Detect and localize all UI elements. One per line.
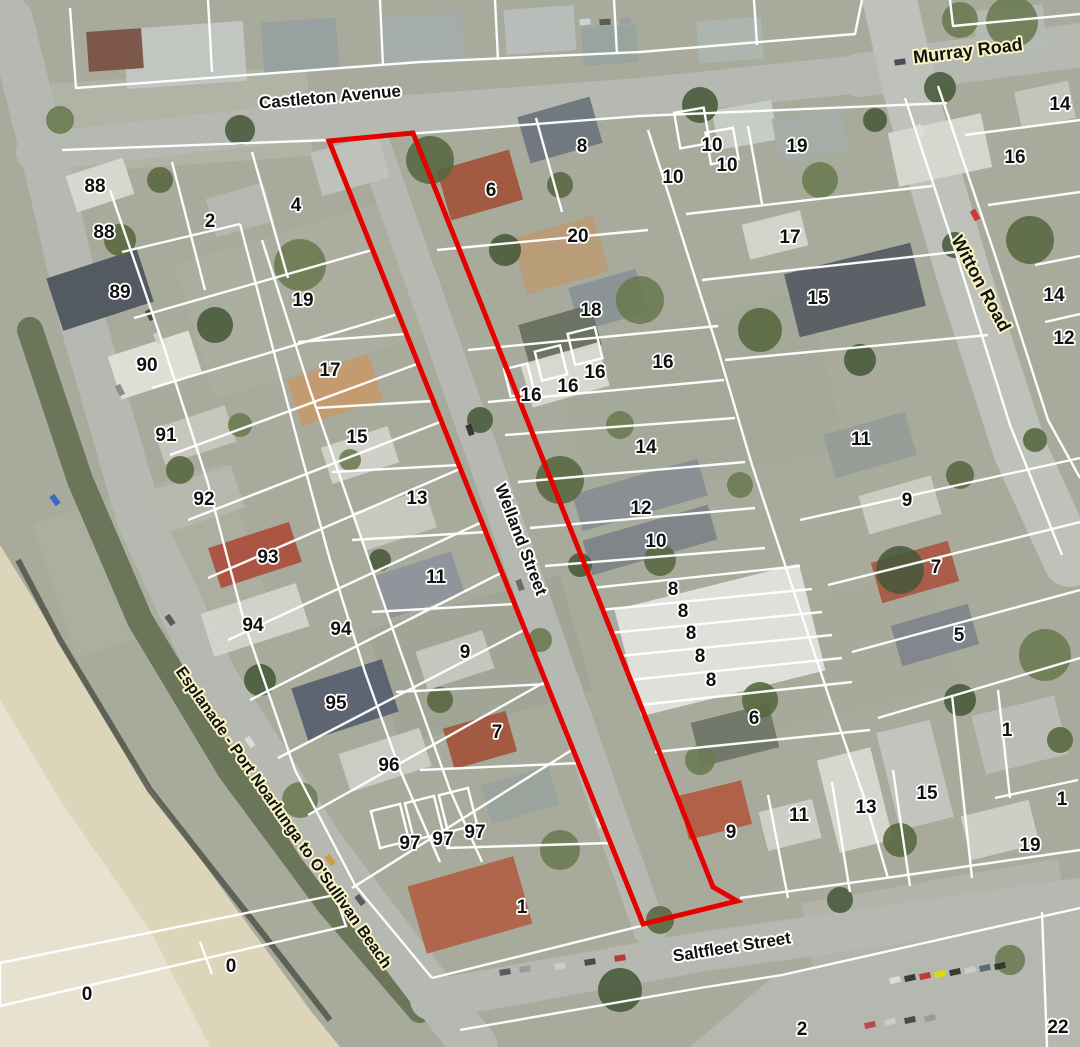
- parcel-number-label: 18: [580, 300, 601, 321]
- tree-canopy: [489, 234, 521, 266]
- parcel-number-label: 8: [686, 623, 697, 644]
- tree-canopy: [883, 823, 917, 857]
- parcel-number-label: 15: [807, 288, 829, 309]
- tree-canopy: [924, 72, 956, 104]
- parked-car: [579, 19, 590, 26]
- tree-canopy: [944, 684, 976, 716]
- parcel-number-label: 14: [1043, 285, 1065, 306]
- parcel-number-label: 11: [426, 567, 447, 588]
- tree-canopy: [540, 830, 580, 870]
- aerial-map[interactable]: Castleton AvenueMurray RoadWitton RoadWe…: [0, 0, 1080, 1047]
- tree-canopy: [1006, 216, 1054, 264]
- parcel-number-label: 92: [193, 489, 214, 510]
- parcel-number-label: 0: [82, 984, 93, 1005]
- parcel-number-label: 16: [1004, 147, 1025, 168]
- parcel-number-label: 10: [701, 135, 722, 156]
- parcel-number-label: 8: [668, 579, 679, 600]
- parcel-number-label: 19: [1019, 835, 1040, 856]
- parked-car: [619, 18, 630, 25]
- parcel-number-label: 20: [567, 226, 588, 247]
- parcel-number-label: 7: [931, 557, 942, 578]
- parcel-number-label: 8: [678, 601, 689, 622]
- parcel-number-label: 96: [378, 755, 399, 776]
- tree-canopy: [863, 108, 887, 132]
- parcel-number-label: 2: [797, 1019, 808, 1040]
- tree-canopy: [166, 456, 194, 484]
- parcel-number-label: 14: [635, 437, 657, 458]
- parcel-number-label: 6: [486, 180, 497, 201]
- tree-canopy: [742, 682, 778, 718]
- parcel-number-label: 97: [464, 822, 485, 843]
- parcel-number-label: 97: [399, 833, 420, 854]
- parcel-number-label: 90: [136, 355, 157, 376]
- parcel-number-label: 12: [1053, 328, 1074, 349]
- parcel-number-label: 16: [557, 376, 578, 397]
- parcel-number-label: 88: [84, 176, 105, 197]
- parcel-number-label: 5: [954, 625, 965, 646]
- parcel-number-label: 10: [645, 531, 666, 552]
- building-roof: [86, 28, 144, 72]
- parcel-number-label: 97: [432, 829, 453, 850]
- tree-canopy: [1023, 428, 1047, 452]
- parcel-number-label: 0: [226, 956, 237, 977]
- tree-canopy: [682, 87, 718, 123]
- parcel-number-label: 10: [662, 167, 683, 188]
- parcel-number-label: 22: [1047, 1017, 1068, 1038]
- tree-canopy: [942, 2, 978, 38]
- parcel-number-label: 10: [716, 155, 737, 176]
- parcel-number-label: 19: [292, 290, 313, 311]
- building-roof: [261, 17, 339, 72]
- parcel-number-label: 9: [726, 822, 737, 843]
- parcel-number-label: 9: [460, 642, 471, 663]
- parcel-number-label: 14: [1049, 94, 1071, 115]
- parcel-number-label: 8: [577, 136, 588, 157]
- parcel-number-label: 94: [242, 615, 264, 636]
- parcel-number-label: 7: [492, 722, 503, 743]
- aerial-map-viewport[interactable]: Castleton AvenueMurray RoadWitton RoadWe…: [0, 0, 1080, 1047]
- parcel-number-label: 4: [291, 195, 302, 216]
- parcel-number-label: 95: [325, 693, 347, 714]
- parcel-number-label: 13: [406, 488, 427, 509]
- tree-canopy: [197, 307, 233, 343]
- parcel-number-label: 11: [851, 429, 872, 450]
- tree-canopy: [1047, 727, 1073, 753]
- parcel-number-label: 9: [902, 490, 913, 511]
- parcel-number-label: 1: [1002, 720, 1013, 741]
- parcel-number-label: 91: [155, 425, 177, 446]
- parcel-number-label: 8: [695, 646, 706, 667]
- parcel-number-label: 16: [584, 362, 605, 383]
- parked-car: [599, 19, 610, 26]
- parcel-number-label: 11: [789, 805, 810, 826]
- parcel-number-label: 1: [1057, 789, 1068, 810]
- parcel-number-label: 8: [706, 670, 717, 691]
- tree-canopy: [616, 276, 664, 324]
- parcel-number-label: 13: [855, 797, 876, 818]
- parcel-number-label: 94: [330, 619, 352, 640]
- parcel-number-label: 88: [93, 222, 114, 243]
- tree-canopy: [995, 945, 1025, 975]
- tree-canopy: [46, 106, 74, 134]
- parcel-number-label: 1: [517, 897, 528, 918]
- tree-canopy: [225, 115, 255, 145]
- building-roof: [696, 17, 764, 63]
- parcel-number-label: 15: [916, 783, 938, 804]
- building-roof: [581, 24, 639, 66]
- parcel-number-label: 2: [205, 211, 216, 232]
- parcel-number-label: 15: [346, 427, 368, 448]
- tree-canopy: [738, 308, 782, 352]
- tree-canopy: [727, 472, 753, 498]
- tree-canopy: [147, 167, 173, 193]
- parcel-number-label: 12: [630, 498, 651, 519]
- parcel-number-label: 16: [652, 352, 673, 373]
- parcel-number-label: 93: [257, 547, 278, 568]
- building-roof: [504, 5, 577, 55]
- parcel-number-label: 16: [520, 385, 541, 406]
- parcel-number-label: 17: [779, 227, 800, 248]
- parcel-number-label: 17: [319, 360, 340, 381]
- tree-canopy: [802, 162, 838, 198]
- parcel-number-label: 89: [109, 282, 130, 303]
- parcel-number-label: 6: [749, 708, 760, 729]
- parcel-number-label: 19: [786, 136, 807, 157]
